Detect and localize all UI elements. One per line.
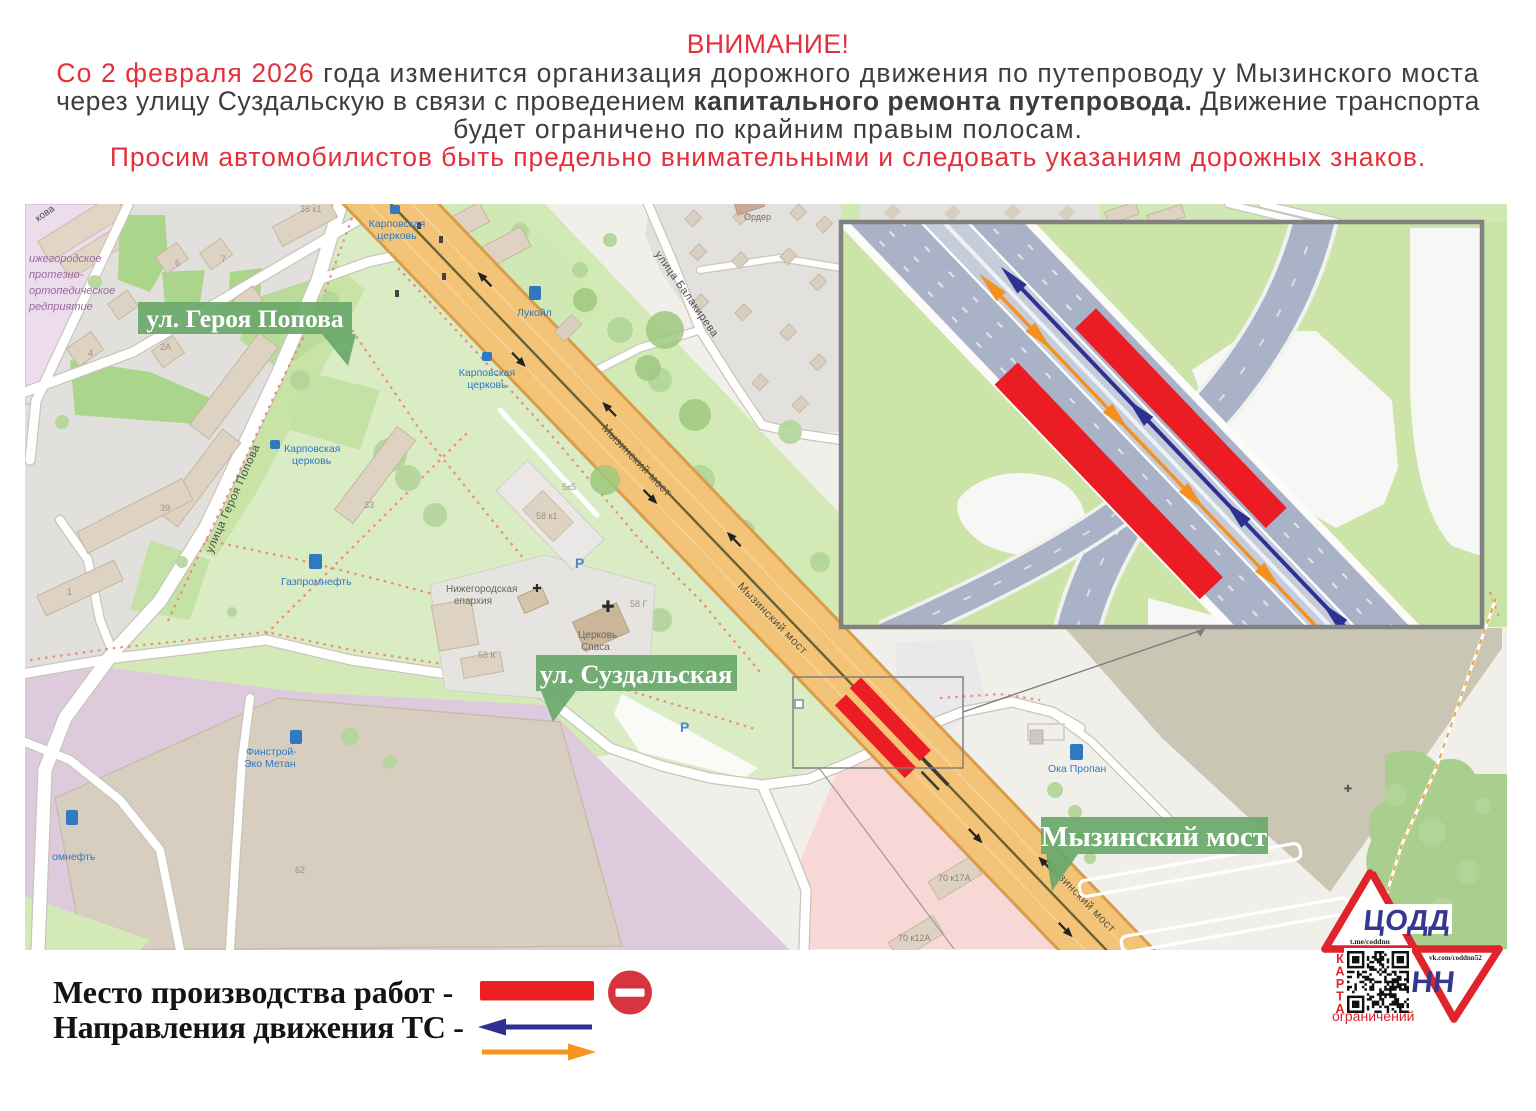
svg-text:vk.com/coddnn52: vk.com/coddnn52 xyxy=(1429,954,1482,962)
svg-text:62: 62 xyxy=(295,865,305,875)
svg-text:1: 1 xyxy=(67,587,72,597)
svg-text:омнефть: омнефть xyxy=(52,851,96,863)
svg-text:2А: 2А xyxy=(160,342,171,352)
svg-text:Нижегородская: Нижегородская xyxy=(446,584,517,595)
svg-text:58 к1: 58 к1 xyxy=(536,511,557,521)
svg-text:✚: ✚ xyxy=(532,583,541,595)
svg-text:58 К: 58 К xyxy=(478,650,497,660)
svg-text:церковь: церковь xyxy=(292,455,332,467)
svg-text:70 к17А: 70 к17А xyxy=(938,873,970,883)
svg-text:58 Г: 58 Г xyxy=(630,599,648,609)
svg-text:33: 33 xyxy=(364,500,374,510)
svg-text:ЦОДД: ЦОДД xyxy=(1362,905,1452,937)
svg-text:церковь: церковь xyxy=(467,379,507,391)
svg-text:редприятие: редприятие xyxy=(28,301,93,313)
svg-text:4: 4 xyxy=(88,348,93,358)
svg-text:НН: НН xyxy=(1410,966,1457,999)
svg-text:✚: ✚ xyxy=(601,599,614,616)
svg-text:ограничений: ограничений xyxy=(1332,1008,1414,1024)
svg-text:7: 7 xyxy=(221,254,226,264)
svg-text:✚: ✚ xyxy=(1344,784,1352,795)
svg-text:Карповская: Карповская xyxy=(284,443,340,455)
svg-text:35 к1: 35 к1 xyxy=(300,204,321,214)
svg-text:Эко Метан: Эко Метан xyxy=(244,758,296,770)
svg-text:епархия: епархия xyxy=(454,596,492,607)
svg-text:ул. Суздальская: ул. Суздальская xyxy=(540,659,733,689)
svg-text:Спаса: Спаса xyxy=(581,642,610,653)
svg-text:Мызинский мост: Мызинский мост xyxy=(1041,821,1267,853)
svg-text:ул. Героя Попова: ул. Героя Попова xyxy=(146,304,344,333)
svg-text:Финстрой-: Финстрой- xyxy=(246,746,297,758)
svg-text:ортопедическое: ортопедическое xyxy=(29,285,115,297)
svg-text:Лукойл: Лукойл xyxy=(517,307,552,319)
svg-text:Карповская: Карповская xyxy=(459,367,515,379)
svg-text:5к5: 5к5 xyxy=(562,482,576,492)
svg-text:t.me/coddnn: t.me/coddnn xyxy=(1350,937,1391,946)
svg-text:Карповская: Карповская xyxy=(369,218,425,230)
svg-text:Церковь: Церковь xyxy=(578,630,617,641)
svg-text:Р: Р xyxy=(575,555,584,571)
svg-text:Ордер: Ордер xyxy=(744,212,771,222)
svg-text:Р: Р xyxy=(680,719,689,735)
svg-text:70 к12А: 70 к12А xyxy=(898,933,930,943)
svg-text:церковь: церковь xyxy=(377,230,417,242)
svg-text:ижегородское: ижегородское xyxy=(29,253,101,265)
svg-text:39: 39 xyxy=(160,503,170,513)
svg-text:Ока Пропан: Ока Пропан xyxy=(1048,763,1107,775)
svg-text:протезно-: протезно- xyxy=(29,269,84,281)
svg-text:6: 6 xyxy=(175,258,180,268)
svg-text:Газпромнефть: Газпромнефть xyxy=(281,576,352,588)
